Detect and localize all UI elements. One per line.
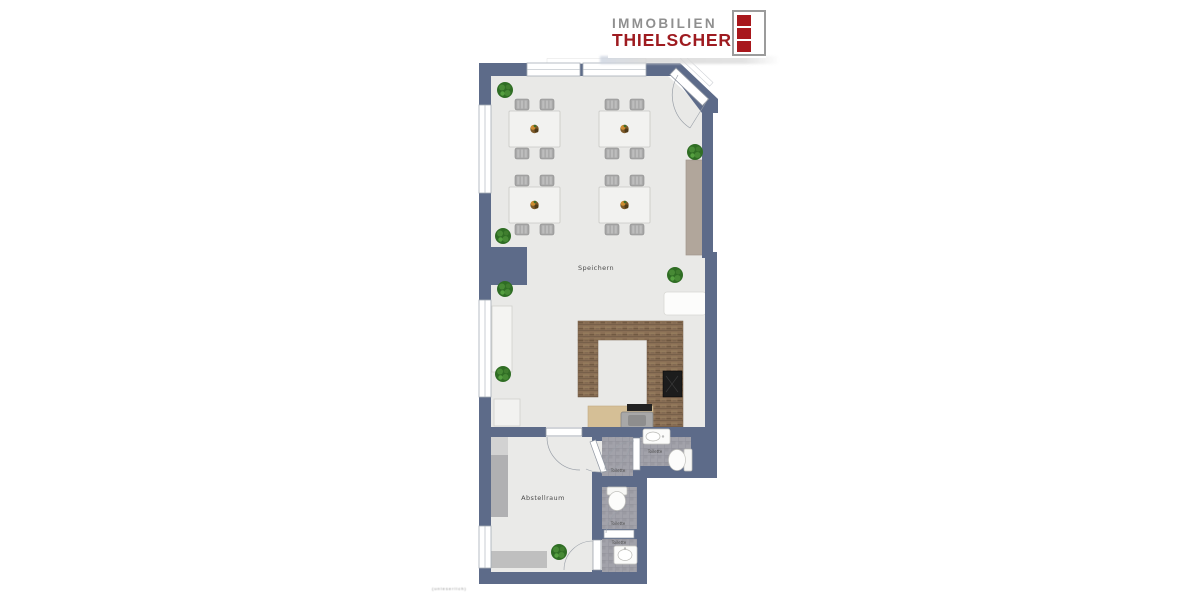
label-wc-right: Toilette [647,449,663,454]
label-wc-bottom: Toilette [611,540,627,545]
label-wc-middle: Toilette [610,521,626,526]
small-appliance [627,404,652,411]
plant-icon [497,82,513,98]
cabinet-left [494,399,520,426]
toilet-wc-middle [607,487,627,511]
brand-name-line1: IMMOBILIEN [612,17,732,31]
brand-logo-mark-icon [732,10,766,56]
storage-shelf-left [491,455,508,517]
storage-shelf-top [491,437,508,455]
toilet-wc-right [669,449,693,471]
storage-shelf-bottom [491,551,547,568]
chimney-block [485,247,527,285]
brand-logo-text: IMMOBILIEN THIELSCHER [608,17,732,49]
cooktop [663,371,682,397]
floor-plan: Speichern Abstellraum Toilette Toilette … [455,55,735,600]
plant-icon [667,267,683,283]
plant-icon [687,144,703,160]
plant-icon [551,544,567,560]
plant-icon [497,281,513,297]
page: { "brand": { "name_line1": "IMMOBILIEN",… [0,0,1200,600]
fine-print: (unleserlich) [432,586,488,593]
plant-icon [495,366,511,382]
label-wc-vestibule: Toilette [610,468,626,473]
sideboard-left [492,306,512,372]
bench-right [664,292,706,315]
label-main-room: Speichern [578,264,614,272]
plant-icon [495,228,511,244]
brand-logo: IMMOBILIEN THIELSCHER [608,8,766,58]
sink-wc-right [643,429,670,444]
brand-name-line2: THIELSCHER [612,32,732,50]
sink-wc-bottom [614,546,637,564]
label-storage-room: Abstellraum [521,494,565,502]
